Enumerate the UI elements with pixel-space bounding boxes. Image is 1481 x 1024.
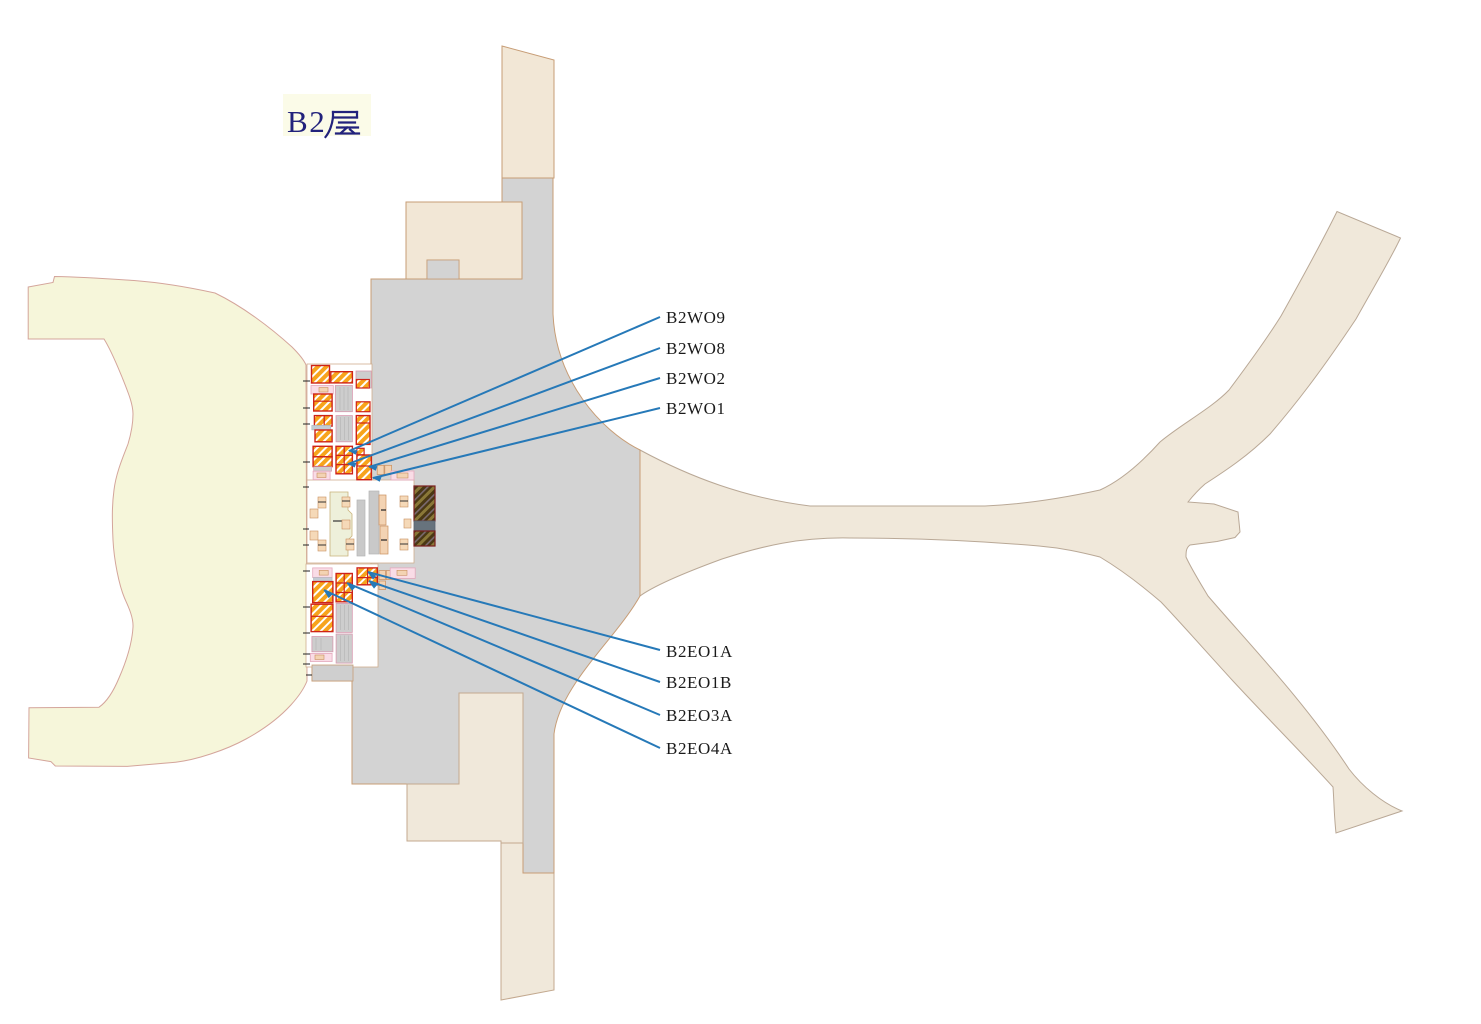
svg-text:B2WO1: B2WO1 [666,399,726,418]
svg-text:B2EO3A: B2EO3A [666,706,733,725]
svg-text:B2EO1A: B2EO1A [666,642,733,661]
svg-text:B2WO8: B2WO8 [666,339,726,358]
svg-text:B2EO4A: B2EO4A [666,739,733,758]
svg-text:B2WO2: B2WO2 [666,369,726,388]
svg-text:B2WO9: B2WO9 [666,308,726,327]
svg-text:B2: B2 [287,104,326,139]
svg-text:B2EO1B: B2EO1B [666,673,732,692]
